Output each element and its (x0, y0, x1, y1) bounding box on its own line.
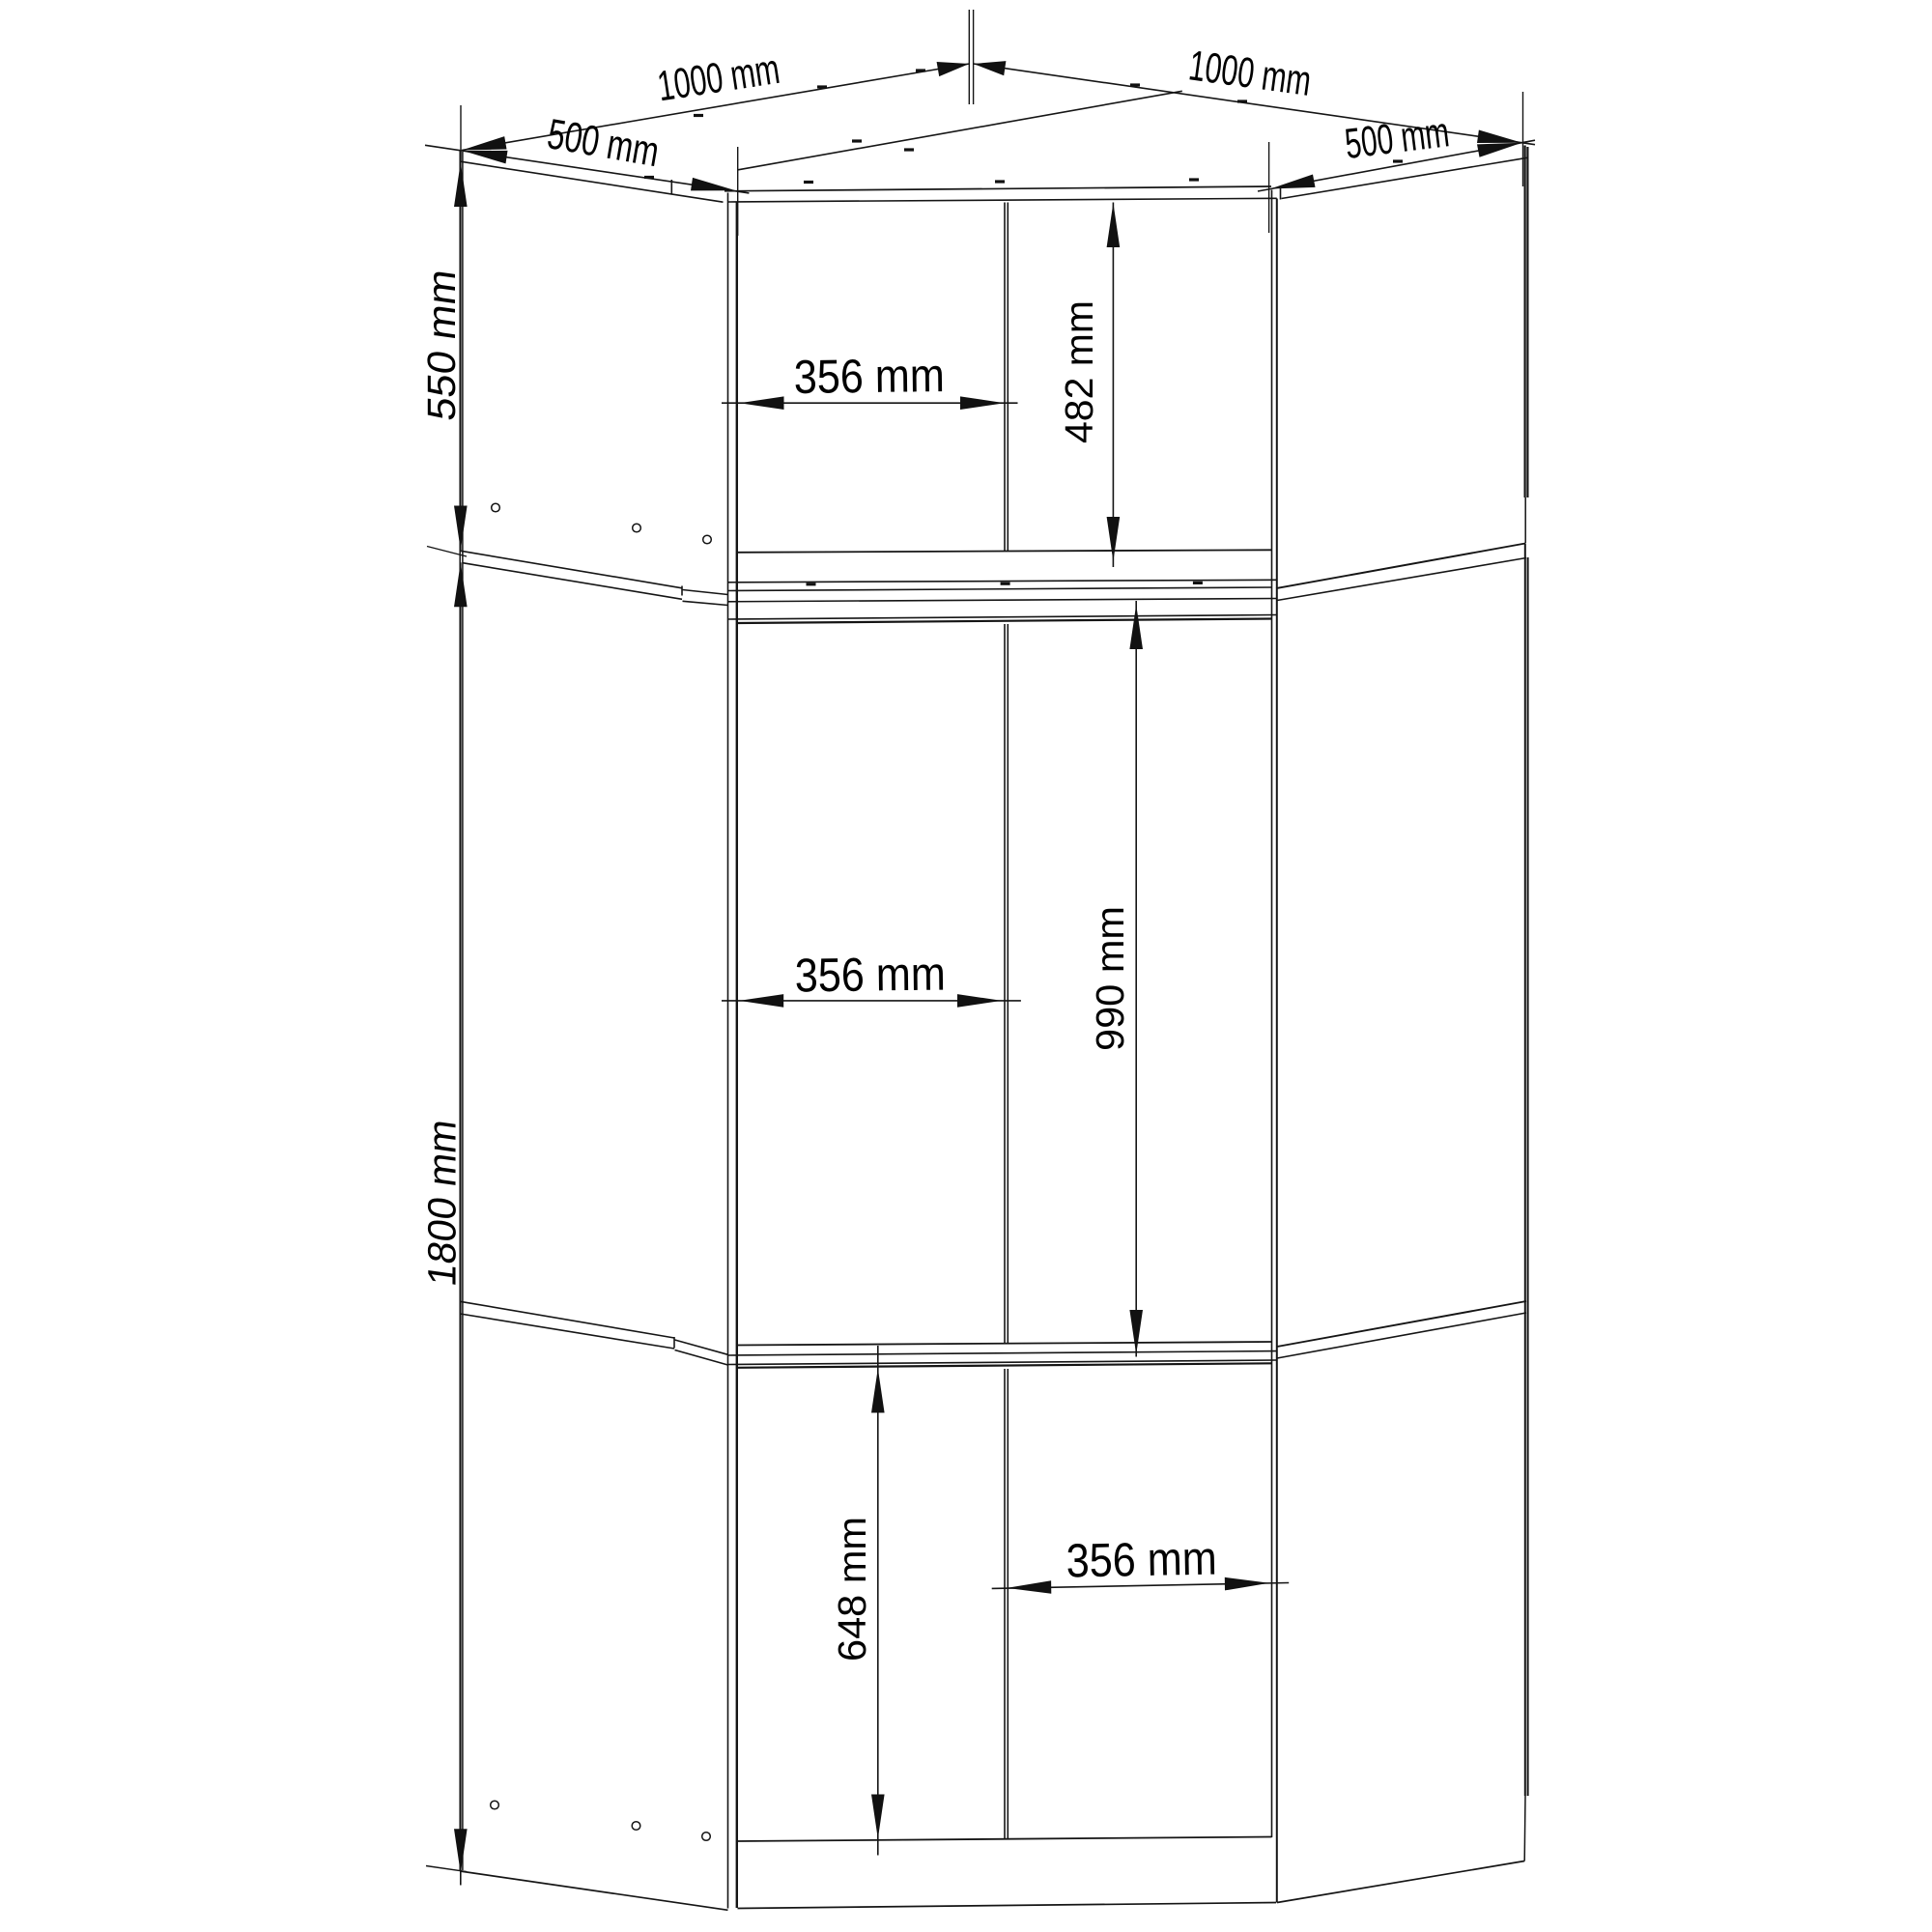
svg-text:648 mm: 648 mm (830, 1517, 874, 1662)
svg-text:990 mm: 990 mm (1088, 906, 1132, 1051)
svg-text:550 mm: 550 mm (419, 267, 464, 423)
svg-text:356 mm: 356 mm (794, 949, 946, 1003)
svg-text:1800 mm: 1800 mm (420, 1117, 465, 1289)
svg-text:356 mm: 356 mm (793, 350, 945, 404)
svg-text:482 mm: 482 mm (1057, 300, 1101, 443)
svg-text:356 mm: 356 mm (1065, 1533, 1217, 1588)
